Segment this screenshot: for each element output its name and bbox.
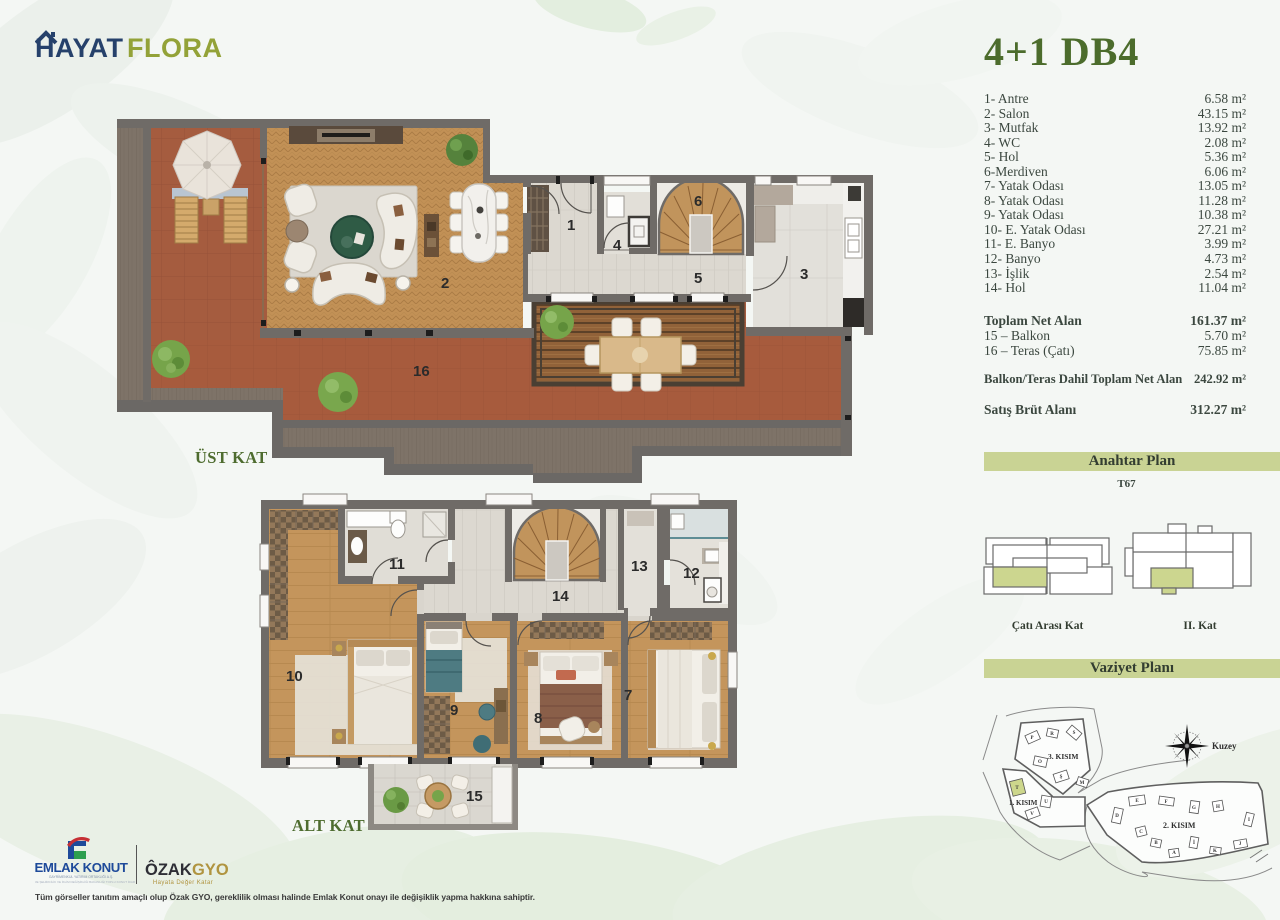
svg-text:Kuzey: Kuzey — [1212, 741, 1237, 751]
svg-text:Hayata Değer Katar: Hayata Değer Katar — [153, 880, 213, 886]
svg-text:3. KISIM: 3. KISIM — [1048, 752, 1078, 761]
svg-text:10: 10 — [286, 668, 303, 685]
svg-text:5: 5 — [694, 270, 702, 287]
svg-text:Ş: Ş — [1060, 775, 1063, 780]
svg-text:14: 14 — [552, 588, 569, 605]
svg-text:GAYRİMENKUL YATIRIM ORTAKLIĞI: GAYRİMENKUL YATIRIM ORTAKLIĞI A.Ş. — [49, 874, 113, 879]
svg-text:GYO: GYO — [192, 861, 229, 879]
svg-text:15: 15 — [466, 788, 483, 805]
svg-text:3: 3 — [800, 266, 808, 283]
svg-text:ÔZAK: ÔZAK — [145, 860, 192, 879]
svg-text:12: 12 — [683, 565, 700, 582]
svg-text:U: U — [1044, 800, 1048, 805]
svg-text:EMLAK KONUT: EMLAK KONUT — [35, 860, 128, 875]
svg-text:G: G — [1192, 806, 1196, 811]
svg-text:H: H — [1216, 805, 1220, 810]
svg-text:M: M — [1080, 781, 1085, 786]
svg-text:2. KISIM: 2. KISIM — [1163, 821, 1196, 830]
svg-text:13: 13 — [631, 558, 648, 575]
svg-text:1. KISIM: 1. KISIM — [1009, 799, 1038, 807]
svg-text:11: 11 — [389, 556, 405, 573]
svg-text:7: 7 — [624, 687, 632, 704]
svg-text:S: S — [1073, 731, 1076, 736]
svg-text:D: D — [1115, 814, 1119, 819]
svg-text:C: C — [1139, 830, 1143, 835]
svg-text:V: V — [1030, 812, 1034, 817]
svg-text:I: I — [1248, 818, 1250, 823]
svg-text:2: 2 — [441, 275, 449, 292]
svg-text:R: R — [1050, 732, 1054, 737]
svg-text:4: 4 — [613, 237, 622, 254]
svg-text:16: 16 — [413, 363, 430, 380]
svg-text:8: 8 — [534, 710, 542, 727]
svg-text:1: 1 — [567, 217, 575, 234]
svg-text:K: K — [1213, 849, 1217, 854]
svg-text:9: 9 — [450, 702, 458, 719]
svg-text:A: A — [1172, 851, 1176, 856]
svg-text:T.C. ÇEVRE ŞEHİRCİLİK VE İKLİM: T.C. ÇEVRE ŞEHİRCİLİK VE İKLİM DEĞİŞİKLİ… — [35, 879, 135, 884]
svg-text:6: 6 — [694, 193, 702, 210]
svg-text:P: P — [1030, 736, 1033, 741]
svg-text:F: F — [1164, 800, 1167, 805]
svg-text:İ: İ — [1193, 840, 1195, 846]
svg-text:O: O — [1038, 760, 1042, 765]
